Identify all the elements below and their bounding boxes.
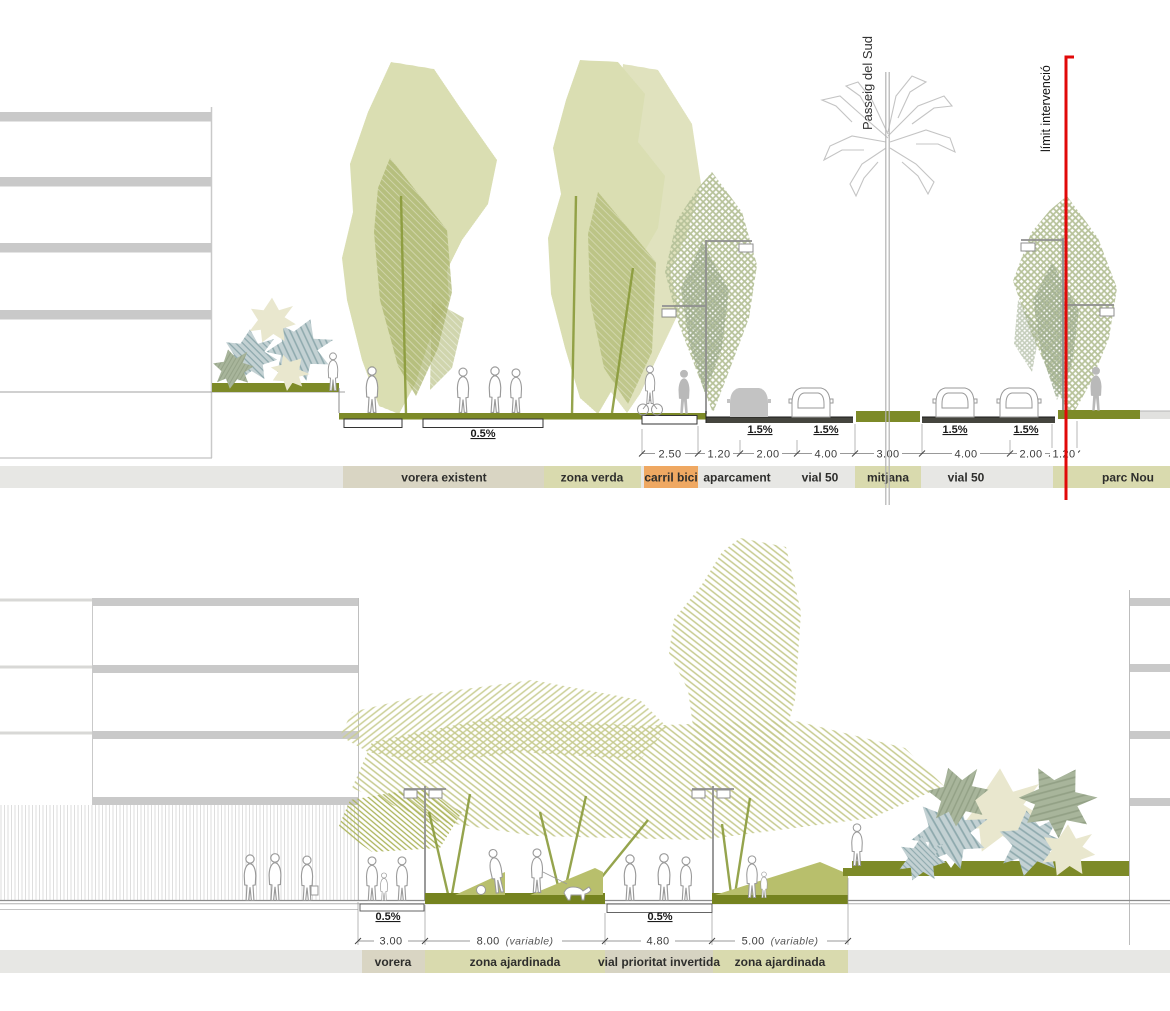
bottom-section: 3.00 8.00(variable) 4.80 5.00(variable) … (0, 538, 1170, 973)
street-name-label: Passeig del Sud (860, 36, 875, 130)
zone-label-vial-50-left: vial 50 (802, 471, 839, 485)
dim-vial-right: 4.00 (954, 449, 977, 461)
street-sections-drawing: 2.50 1.20 2.00 4.00 3.00 4.00 2.00 1.20 … (0, 0, 1170, 1011)
zone-label-vial-50-right: vial 50 (948, 471, 985, 485)
zone-label-zona-ajardinada-2: zona ajardinada (735, 955, 826, 969)
building-right (1129, 590, 1170, 945)
dim-aparcament: 2.00 (756, 449, 779, 461)
zone-label-zona-verda: zona verda (561, 471, 624, 485)
slope-label-road: 1.5% (813, 424, 838, 436)
dim-gap-2: 1.20 (1052, 449, 1075, 461)
zone-label-zona-ajardinada-1: zona ajardinada (470, 955, 561, 969)
building-left-facade (0, 107, 212, 458)
building-left-main (0, 598, 359, 900)
slope-label-road: 1.5% (942, 424, 967, 436)
palm-tree (822, 76, 955, 196)
zone-label-vial-prioritat: vial prioritat invertida (598, 955, 720, 969)
slope-label-road: 1.5% (1013, 424, 1038, 436)
zone-label-carril-bici: carril bici (644, 471, 697, 485)
limit-label: límit intervenció (1039, 65, 1053, 152)
garden-canopies (338, 538, 944, 852)
dim-aparcament-right: 2.00 (1019, 449, 1042, 461)
zone-band-top: vorera existent zona verda carril bici a… (0, 466, 1170, 488)
dim-carril-bici: 2.50 (658, 449, 681, 461)
slope-label-sidewalk: 0.5% (470, 428, 495, 440)
zone-label-aparcament: aparcament (703, 471, 770, 485)
slope-label-road: 1.5% (747, 424, 772, 436)
zone-band-bottom: vorera zona ajardinada vial prioritat in… (0, 950, 1170, 973)
dim-zona-ajardinada-1: 8.00(variable) (477, 936, 554, 948)
dim-mitjana: 3.00 (876, 449, 899, 461)
dim-zona-ajardinada-2: 5.00(variable) (742, 936, 819, 948)
slope-label: 0.5% (375, 911, 400, 923)
dim-vial-left: 4.00 (814, 449, 837, 461)
top-section: 2.50 1.20 2.00 4.00 3.00 4.00 2.00 1.20 … (0, 36, 1170, 505)
zone-label-vorera: vorera (375, 955, 412, 969)
shrub-cluster (209, 298, 340, 398)
planter-right (843, 861, 1129, 876)
tree-canopy-1 (342, 62, 497, 414)
garden-ground (360, 862, 848, 913)
zone-label-parc-nou: parc Nou (1102, 471, 1154, 485)
dim-vial: 4.80 (646, 936, 669, 948)
zone-label-vorera-existent: vorera existent (401, 471, 486, 485)
zone-label-mitjana: mitjana (867, 471, 909, 485)
building-left-faint (0, 600, 92, 733)
dim-vorera: 3.00 (379, 936, 402, 948)
dim-gap-1: 1.20 (707, 449, 730, 461)
slope-label: 0.5% (647, 911, 672, 923)
